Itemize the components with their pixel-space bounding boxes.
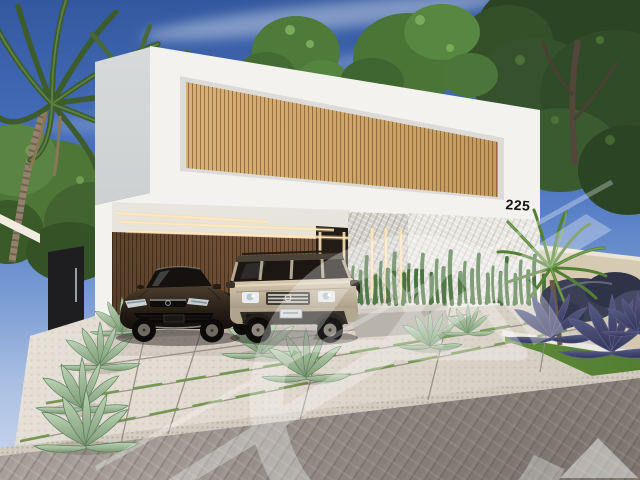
gate-handle xyxy=(75,268,77,302)
house-number: 225 xyxy=(499,196,536,214)
architectural-rendering: 225 xyxy=(0,0,640,480)
